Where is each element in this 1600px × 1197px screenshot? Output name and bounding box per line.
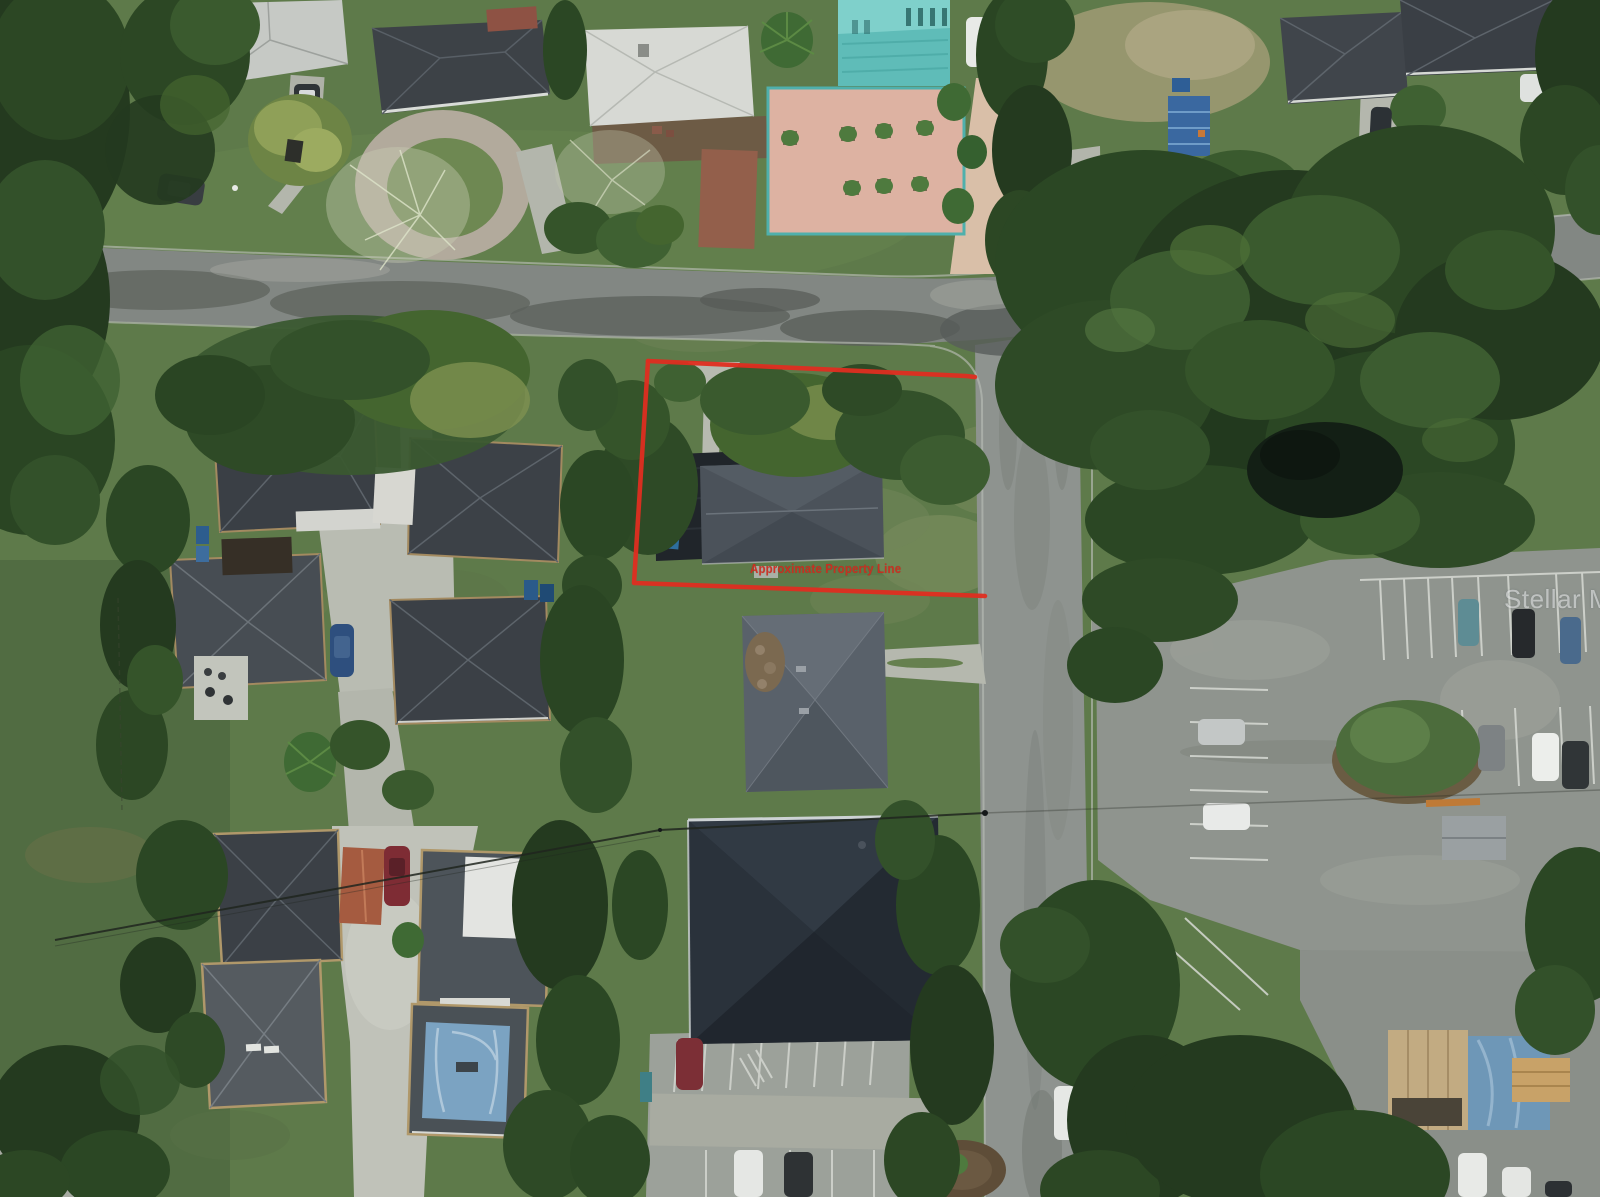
blue-car-top-row <box>1560 617 1581 664</box>
red-roof-shed <box>486 6 537 31</box>
white-car-stall <box>734 1150 763 1197</box>
brick-path <box>698 149 757 249</box>
gray-car-mid-row <box>1478 725 1505 771</box>
wood-deck <box>221 537 292 575</box>
mailbox <box>232 185 238 191</box>
house-top-right-a <box>1280 12 1408 104</box>
aerial-scene <box>0 0 1600 1197</box>
lumber-stack <box>1512 1058 1570 1102</box>
black-suv-top-row <box>1512 609 1535 658</box>
silver-suv-west-stalls <box>1198 719 1245 745</box>
dark-car-stall <box>784 1152 813 1197</box>
compound-house-se <box>390 596 550 724</box>
house-top-right-b <box>1400 0 1556 76</box>
salmon-courtyard <box>768 88 964 234</box>
middle-house <box>742 612 888 792</box>
white-car-bottom-right-1 <box>1458 1153 1487 1197</box>
red-car-parking <box>676 1038 703 1090</box>
white-car-mid-row-2 <box>1532 733 1559 781</box>
property-line-label: Approximate Property Line <box>750 561 901 576</box>
dark-car-mid-row <box>1562 741 1589 789</box>
patio <box>194 656 248 720</box>
aerial-photo: Approximate Property Line Stellar MLS <box>0 0 1600 1197</box>
white-car-west-stalls <box>1203 803 1250 830</box>
white-car-bottom-right-2 <box>1502 1167 1531 1197</box>
dark-car-bottom-right <box>1545 1181 1572 1197</box>
teal-building <box>838 0 950 86</box>
teal-car-top-row <box>1458 599 1479 646</box>
utility-pole <box>982 810 988 816</box>
watermark-stellar-mls: Stellar MLS <box>1504 584 1600 615</box>
